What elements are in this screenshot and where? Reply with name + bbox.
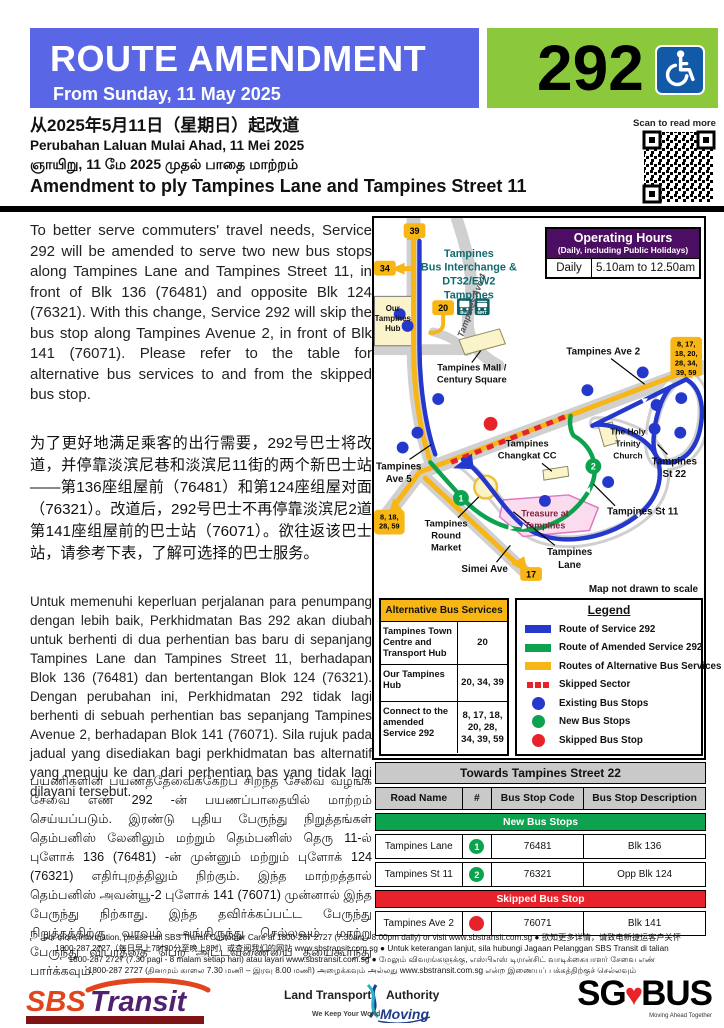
alt-services: 20, 34, 39 <box>458 665 507 701</box>
svg-text:Century Square: Century Square <box>437 374 507 384</box>
svg-text:Changkat CC: Changkat CC <box>498 450 557 460</box>
paragraph-malay: Untuk memenuhi keperluan perjalanan para… <box>30 592 372 801</box>
heart-icon: ♥ <box>625 977 642 1012</box>
alt-destination: Our Tampines Hub <box>381 665 458 701</box>
svg-text:Hub: Hub <box>385 324 401 333</box>
label-round-market: Tampines Round Market <box>425 519 468 553</box>
skipped-sector-swatch <box>523 682 553 688</box>
svg-text:Tampines: Tampines <box>444 248 494 260</box>
sbs-logo-tagline-bar <box>26 1016 204 1024</box>
svg-text:The Holy: The Holy <box>610 427 646 437</box>
road-name: Tampines Lane <box>376 835 462 858</box>
table-row: Tampines St 11 2 76321 Opp Blk 124 <box>375 862 706 887</box>
svg-text:Tampines: Tampines <box>425 519 468 529</box>
badge-right-services-line4: 39, 59 <box>676 368 697 377</box>
lta-text-authority: Authority <box>386 988 440 1002</box>
service-number-box: 292 <box>487 28 718 108</box>
paragraph-chinese: 为了更好地满足乘客的出行需要，292号巴士将改道，并停靠淡滨尼巷和淡滨尼11街的… <box>30 433 372 565</box>
banner-title: ROUTE AMENDMENT <box>50 38 426 80</box>
svg-text:Our: Our <box>386 304 400 313</box>
map-scale-note: Map not drawn to scale <box>589 584 699 595</box>
footer-line-en: For more information, please call SBS Tr… <box>0 932 724 943</box>
label-tampines-st-11: Tampines St 11 <box>607 507 679 518</box>
svg-text:1: 1 <box>458 493 463 503</box>
map-legend: Legend Route of Service 292 Route of Ame… <box>515 598 703 756</box>
svg-text:Round: Round <box>431 530 461 540</box>
sgbus-text-bus: BUS <box>641 974 712 1013</box>
svg-text:Trinity: Trinity <box>615 439 640 449</box>
svg-text:Treasure at: Treasure at <box>521 509 568 519</box>
sgbus-wordmark: SG♥BUS <box>530 976 712 1013</box>
alt-services: 20 <box>458 622 507 664</box>
table-row: Tampines Town Centre and Transport Hub 2… <box>381 622 507 665</box>
route-292-swatch <box>523 625 553 633</box>
bus-stop-code: 76321 <box>491 863 583 886</box>
svg-text:Tampines Mall /: Tampines Mall / <box>437 362 507 372</box>
operating-hours-time: 5.10am to 12.50am <box>592 259 699 277</box>
operating-hours-day: Daily <box>547 259 592 277</box>
service-number: 292 <box>537 30 644 106</box>
existing-stop-swatch <box>523 697 553 710</box>
bus-stop-description: Opp Blk 124 <box>583 863 705 886</box>
amended-route-swatch <box>523 644 553 652</box>
section-new-bus-stops: New Bus Stops <box>375 813 706 831</box>
section-skipped-bus-stop: Skipped Bus Stop <box>375 890 706 908</box>
label-mall: Tampines Mall / Century Square <box>437 362 507 384</box>
bus-stop-code: 76481 <box>491 835 583 858</box>
new-bus-stop-1: 1 <box>453 490 469 506</box>
heading-english: Amendment to ply Tampines Lane and Tampi… <box>30 174 630 199</box>
svg-text:Tampines: Tampines <box>652 456 698 467</box>
table-row: Connect to the amended Service 292 8, 17… <box>381 702 507 753</box>
badge-right-services-line3: 28, 34, <box>675 359 698 368</box>
label-simei-ave: Simei Ave <box>461 564 508 575</box>
svg-text:Tampines: Tampines <box>547 547 593 558</box>
new-bus-stop-2: 2 <box>585 458 601 474</box>
legend-title: Legend <box>523 603 695 617</box>
lta-tagline-prefix: We Keep Your World <box>312 1011 380 1018</box>
road-name: Tampines St 11 <box>376 863 462 886</box>
svg-text:Church: Church <box>613 450 642 460</box>
label-changkat-cc: Tampines Changkat CC <box>498 439 557 461</box>
svg-text:DT32/EW2: DT32/EW2 <box>442 275 495 287</box>
legend-item: Skipped Sector <box>523 676 695 695</box>
badge-left-services-line1: 8, 18, <box>380 513 399 522</box>
building-changkat-cc <box>543 466 569 480</box>
sgbus-logo: SG♥BUS Moving Ahead Together <box>530 976 712 1019</box>
operating-hours-row: Daily 5.10am to 12.50am <box>547 258 699 277</box>
operating-hours-subtitle: (Daily, including Public Holidays) <box>547 245 699 255</box>
route-amendment-banner: ROUTE AMENDMENT From Sunday, 11 May 2025 <box>30 28 479 108</box>
badge-34: 34 <box>380 264 390 274</box>
wheelchair-accessible-icon <box>655 45 705 95</box>
svg-text:Tampines: Tampines <box>376 461 422 472</box>
legend-item: Existing Bus Stops <box>523 694 695 713</box>
svg-text:Ave 5: Ave 5 <box>386 474 412 485</box>
alt-services: 8, 17, 18, 20, 28, 34, 39, 59 <box>458 702 507 753</box>
stops-table-title: Towards Tampines Street 22 <box>375 762 706 784</box>
badge-left-services-line2: 28, 59 <box>379 522 400 531</box>
table-row: Our Tampines Hub 20, 34, 39 <box>381 665 507 702</box>
new-stop-2-marker: 2 <box>469 867 484 882</box>
alternative-services-table: Alternative Bus Services Tampines Town C… <box>379 598 509 756</box>
alt-destination: Connect to the amended Service 292 <box>381 702 458 753</box>
heading-tamil: ஞாயிறு, 11 மே 2025 முதல் பாதை மாற்றம் <box>30 154 630 174</box>
qr-caption: Scan to read more <box>633 118 719 129</box>
label-holy-trinity: The Holy Trinity Church <box>610 427 646 461</box>
footer-line-ms: 1800-287 2727 (7.30 pagi - 8 malam setia… <box>0 954 724 965</box>
col-number: # <box>462 788 492 809</box>
svg-text:Tampines: Tampines <box>506 439 549 449</box>
badge-right-services-line1: 8, 17, <box>677 340 696 349</box>
label-tampines-lane: Tampines Lane <box>547 547 593 571</box>
svg-text:Lane: Lane <box>558 560 582 571</box>
col-bus-stop-code: Bus Stop Code <box>491 788 583 809</box>
existing-bus-stops <box>394 308 687 507</box>
svg-text:Tampines: Tampines <box>375 314 412 323</box>
headings-block: 从2025年5月11日（星期日）起改道 Perubahan Laluan Mul… <box>30 115 630 199</box>
qr-code <box>642 130 716 209</box>
heading-malay: Perubahan Laluan Mulai Ahad, 11 Mei 2025 <box>30 137 630 154</box>
lta-text-land-transport: Land Transport <box>284 988 371 1002</box>
lta-logo: Land Transport Authority We Keep Your Wo… <box>284 983 449 1028</box>
heading-chinese: 从2025年5月11日（星期日）起改道 <box>30 115 630 137</box>
skipped-stop-swatch <box>523 734 553 747</box>
label-interchange: Tampines Bus Interchange & DT32/EW2 Tamp… <box>421 248 517 301</box>
svg-text:St 22: St 22 <box>663 469 687 480</box>
badge-20: 20 <box>438 303 448 313</box>
label-treasure: Treasure at Tampines <box>521 509 568 531</box>
stops-table-header-row: Road Name # Bus Stop Code Bus Stop Descr… <box>375 787 706 810</box>
footer-contact-info: For more information, please call SBS Tr… <box>0 932 724 976</box>
operating-hours-header: Operating Hours (Daily, including Public… <box>547 229 699 258</box>
alt-destination: Tampines Town Centre and Transport Hub <box>381 622 458 664</box>
legend-item: Route of Amended Service 292 <box>523 639 695 658</box>
badge-39: 39 <box>410 226 420 236</box>
new-stop-1-marker: 1 <box>469 839 484 854</box>
heading-divider-rule <box>0 206 724 212</box>
banner-effective-date: From Sunday, 11 May 2025 <box>53 84 281 105</box>
alternative-services-title: Alternative Bus Services <box>381 600 507 622</box>
svg-text:MRT: MRT <box>477 310 487 315</box>
col-road-name: Road Name <box>376 788 462 809</box>
badge-17: 17 <box>526 569 536 579</box>
legend-item: Skipped Bus Stop <box>523 731 695 750</box>
legend-item: Route of Service 292 <box>523 620 695 639</box>
svg-text:Tampines: Tampines <box>525 521 566 531</box>
col-description: Bus Stop Description <box>583 788 705 809</box>
paragraph-english: To better serve commuters' travel needs,… <box>30 221 372 406</box>
svg-text:2: 2 <box>591 462 596 472</box>
new-stop-swatch <box>523 715 553 728</box>
sbs-logo-text-sbs: SBS <box>26 986 86 1018</box>
svg-text:Bus Interchange &: Bus Interchange & <box>421 262 517 274</box>
operating-hours-title: Operating Hours <box>547 231 699 245</box>
skipped-stop-marker <box>469 916 484 931</box>
sgbus-text-sg: SG <box>577 974 626 1013</box>
label-tampines-ave-2: Tampines Ave 2 <box>566 347 640 358</box>
legend-item: Routes of Alternative Bus Services <box>523 657 695 676</box>
alternative-route-swatch <box>523 662 553 670</box>
footer-line-zh: 1800-287 2727（每日早上7时30分至晚上8时）或查阅我们的网站 ww… <box>0 943 724 954</box>
skipped-bus-stop-dot <box>484 417 498 431</box>
svg-text:Market: Market <box>431 542 461 552</box>
sbs-logo-text-transit: Transit <box>90 986 188 1018</box>
bus-stop-description: Blk 136 <box>583 835 705 858</box>
map-panel: 1 2 39 34 20 17 8, 18, 28, 59 8, 17, 18,… <box>372 216 706 760</box>
legend-item: New Bus Stops <box>523 713 695 732</box>
operating-hours-box: Operating Hours (Daily, including Public… <box>545 227 701 279</box>
stops-table: Towards Tampines Street 22 Road Name # B… <box>375 762 706 939</box>
badge-right-services-line2: 18, 20, <box>675 349 698 358</box>
stop-marker-cell: 2 <box>462 863 492 886</box>
table-row: Tampines Lane 1 76481 Blk 136 <box>375 834 706 859</box>
stop-marker-cell: 1 <box>462 835 492 858</box>
sgbus-tagline: Moving Ahead Together <box>530 1013 712 1019</box>
